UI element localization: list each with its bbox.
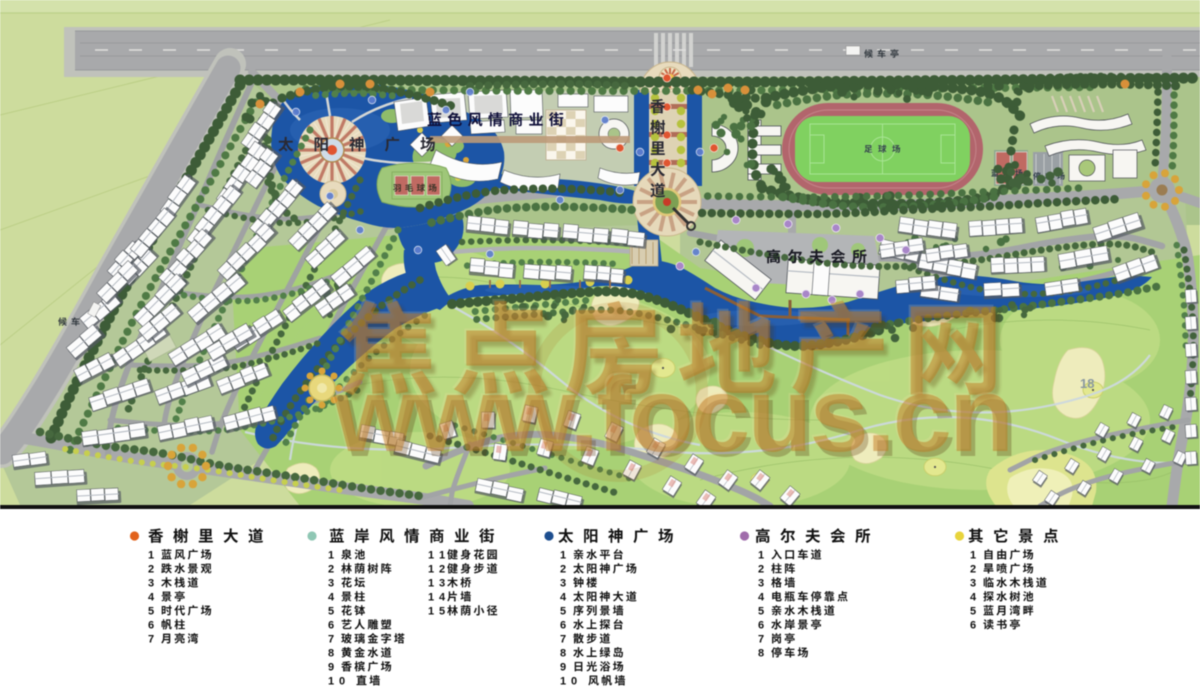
svg-text:5: 5: [328, 606, 334, 618]
svg-text:7: 7: [148, 634, 154, 646]
svg-text:3: 3: [758, 578, 764, 590]
svg-text:2: 2: [439, 564, 445, 576]
svg-text:0: 0: [571, 676, 577, 688]
svg-text:4: 4: [970, 592, 977, 604]
svg-text:2: 2: [328, 564, 334, 576]
svg-text:0: 0: [339, 676, 345, 688]
svg-text:1: 1: [148, 550, 154, 562]
svg-text:6: 6: [148, 620, 154, 632]
svg-text:6: 6: [328, 620, 334, 632]
svg-text:6: 6: [970, 620, 976, 632]
svg-text:1: 1: [758, 550, 764, 562]
svg-text:4: 4: [148, 592, 155, 604]
svg-text:5: 5: [758, 606, 764, 618]
svg-text:2: 2: [560, 564, 566, 576]
svg-text:2: 2: [148, 564, 154, 576]
svg-text:1: 1: [428, 550, 434, 562]
svg-text:5: 5: [439, 606, 445, 618]
svg-text:6: 6: [758, 620, 764, 632]
svg-text:6: 6: [560, 620, 566, 632]
svg-text:9: 9: [328, 662, 334, 674]
svg-text:3: 3: [439, 578, 445, 590]
svg-text:1: 1: [428, 578, 434, 590]
svg-text:2: 2: [758, 564, 764, 576]
svg-text:2: 2: [970, 564, 976, 576]
svg-text:1: 1: [328, 550, 334, 562]
svg-text:1: 1: [560, 676, 566, 688]
svg-text:3: 3: [560, 578, 566, 590]
svg-text:3: 3: [148, 578, 154, 590]
svg-text:4: 4: [758, 592, 765, 604]
svg-text:5: 5: [970, 606, 976, 618]
svg-text:4: 4: [439, 592, 446, 604]
svg-text:4: 4: [560, 592, 567, 604]
svg-text:1: 1: [428, 592, 434, 604]
svg-text:www.focus.cn: www.focus.cn: [333, 356, 1014, 474]
svg-text:5: 5: [560, 606, 566, 618]
svg-text:1: 1: [328, 676, 334, 688]
svg-text:1: 1: [560, 550, 566, 562]
svg-text:5: 5: [148, 606, 154, 618]
svg-text:3: 3: [328, 578, 334, 590]
svg-text:3: 3: [970, 578, 976, 590]
svg-text:1: 1: [428, 564, 434, 576]
svg-text:4: 4: [328, 592, 335, 604]
svg-text:8: 8: [758, 648, 764, 660]
svg-text:9: 9: [560, 662, 566, 674]
svg-text:8: 8: [560, 648, 566, 660]
svg-text:18: 18: [1080, 376, 1094, 391]
svg-text:7: 7: [560, 634, 566, 646]
svg-text:1: 1: [428, 606, 434, 618]
svg-text:7: 7: [328, 634, 334, 646]
svg-text:8: 8: [328, 648, 334, 660]
svg-text:1: 1: [439, 550, 445, 562]
svg-text:7: 7: [758, 634, 764, 646]
svg-text:1: 1: [970, 550, 976, 562]
